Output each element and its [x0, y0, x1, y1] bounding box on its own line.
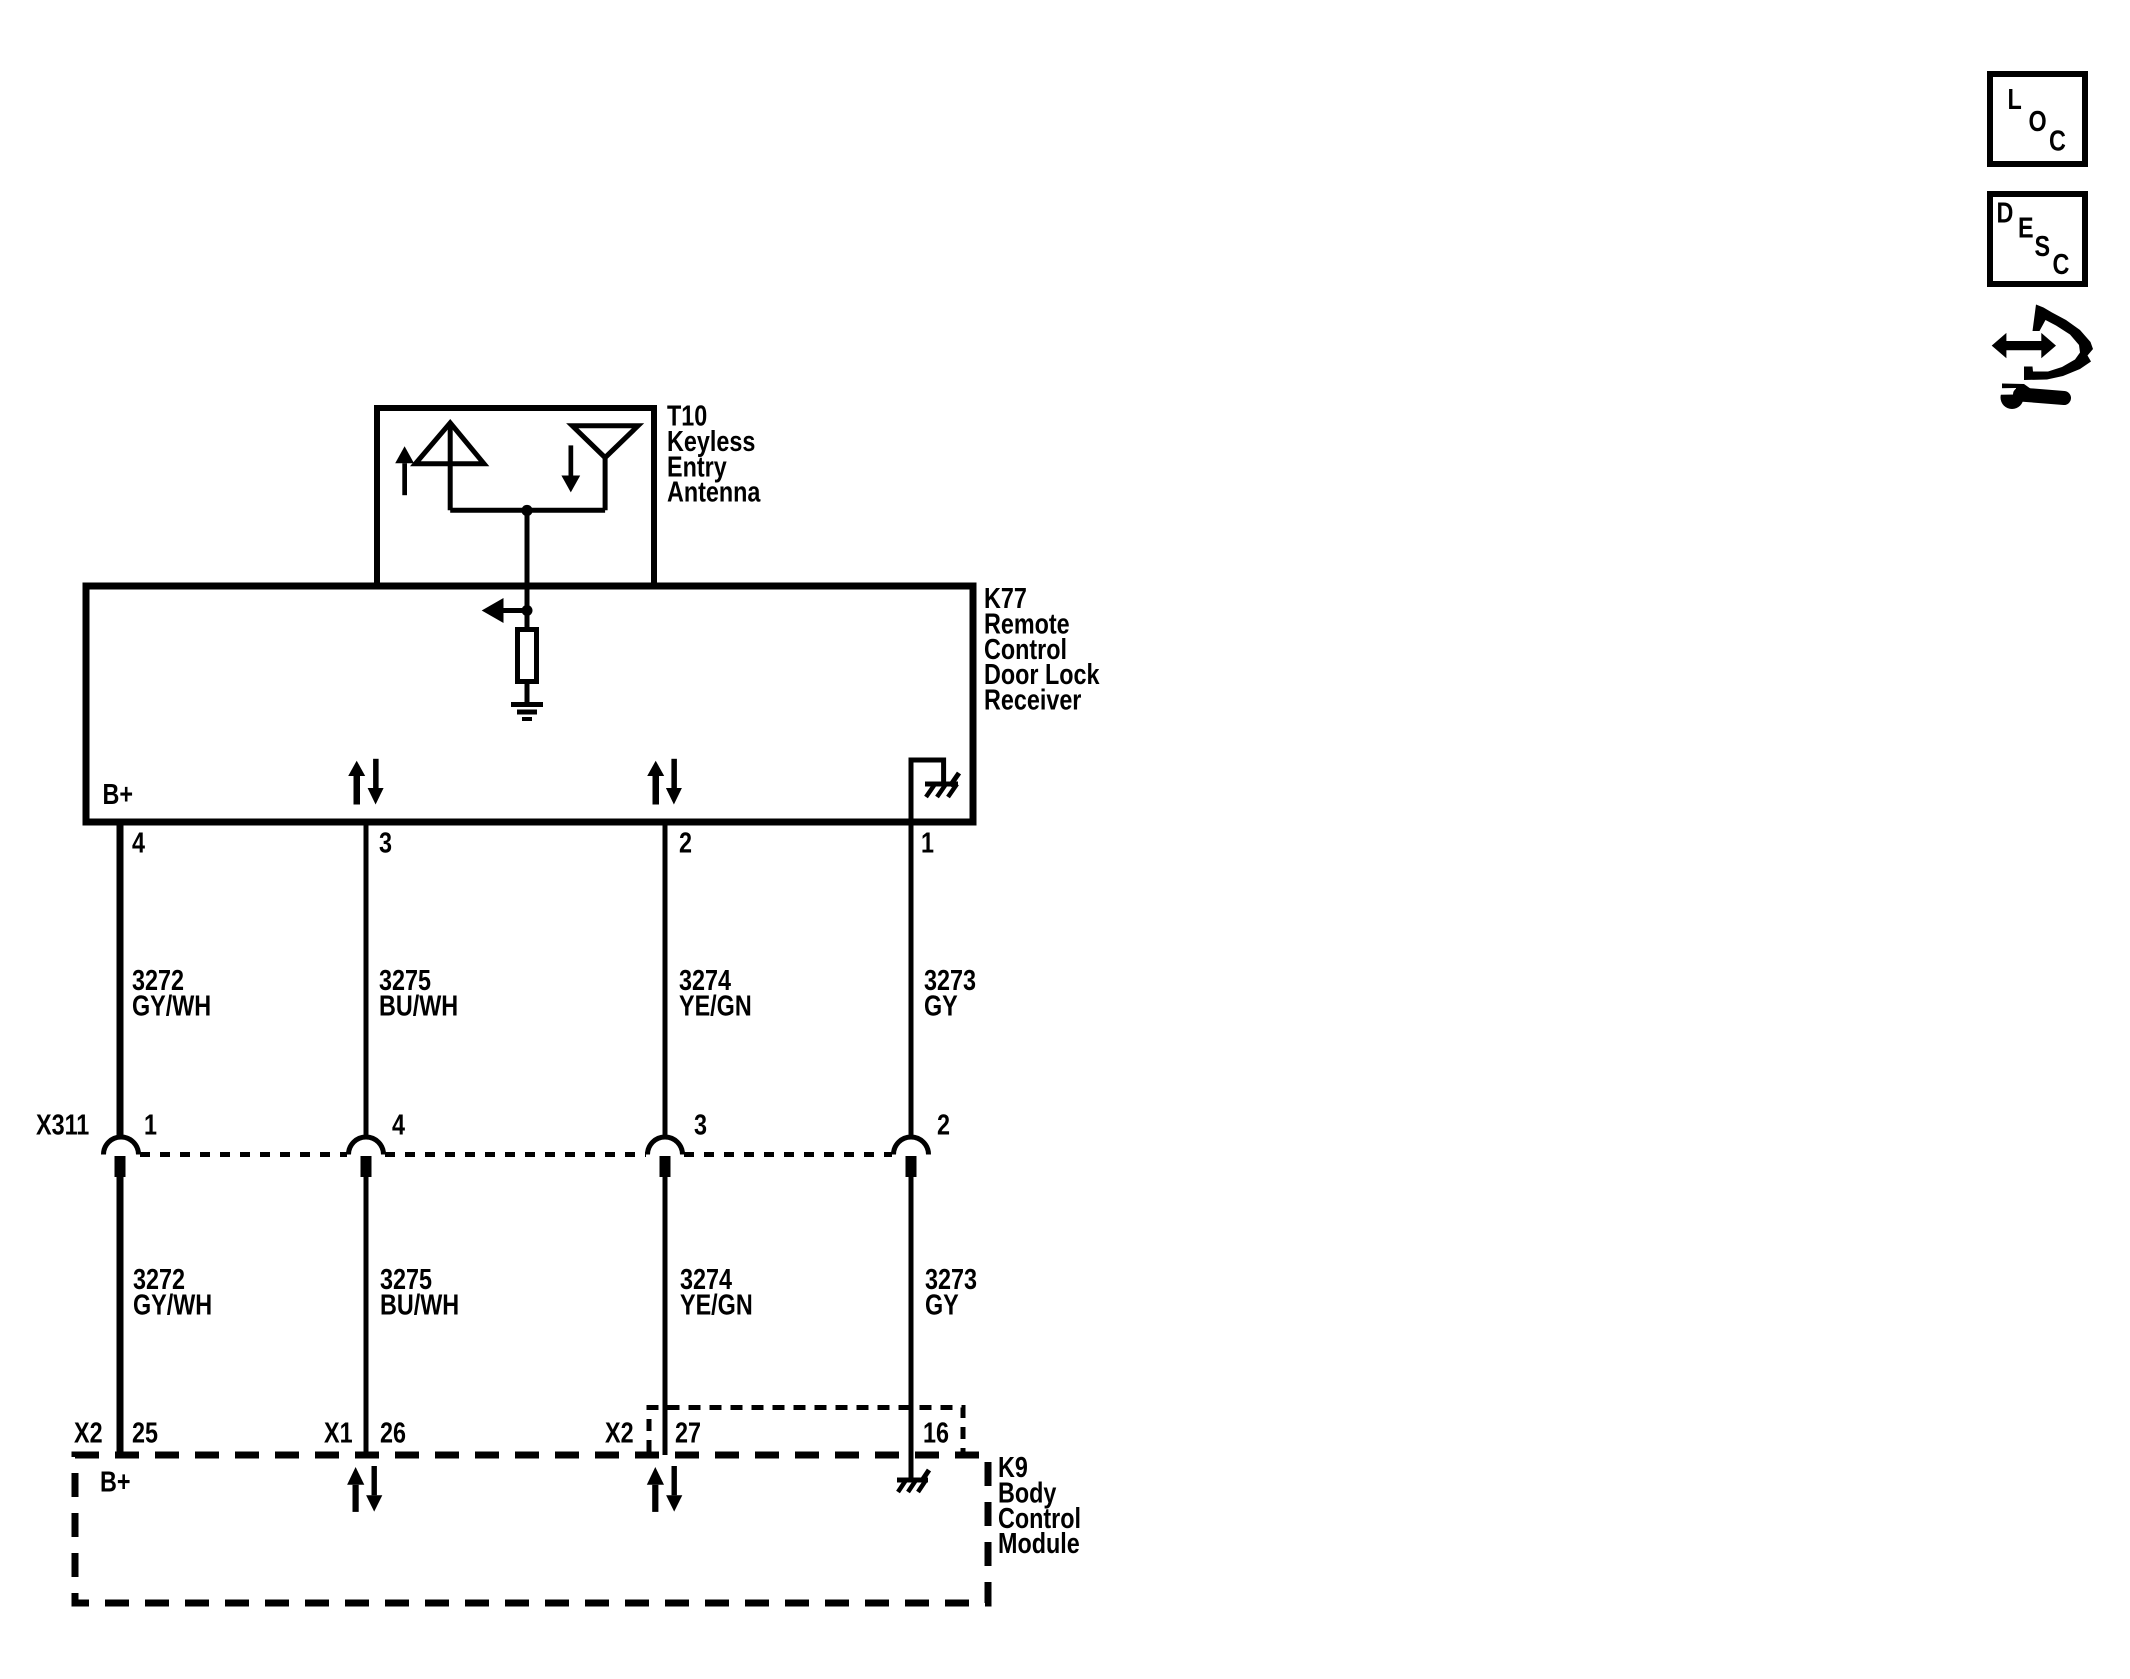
svg-text:27: 27: [675, 1416, 701, 1449]
svg-text:1: 1: [144, 1108, 157, 1141]
svg-text:X1: X1: [324, 1416, 353, 1449]
svg-text:Antenna: Antenna: [667, 475, 761, 508]
svg-text:BU/WH: BU/WH: [380, 1288, 459, 1321]
svg-text:Module: Module: [998, 1527, 1080, 1560]
svg-text:X311: X311: [36, 1108, 89, 1141]
svg-text:YE/GN: YE/GN: [679, 989, 752, 1022]
svg-text:BU/WH: BU/WH: [379, 989, 458, 1022]
svg-text:L: L: [2008, 83, 2022, 116]
svg-text:X2: X2: [605, 1416, 634, 1449]
svg-text:25: 25: [132, 1416, 158, 1449]
svg-text:YE/GN: YE/GN: [680, 1288, 753, 1321]
svg-text:B+: B+: [100, 1465, 131, 1498]
svg-text:3: 3: [694, 1108, 707, 1141]
svg-text:2: 2: [937, 1108, 950, 1141]
svg-text:C: C: [2049, 124, 2066, 157]
svg-text:16: 16: [923, 1416, 949, 1449]
svg-text:3: 3: [379, 826, 392, 859]
svg-text:GY: GY: [925, 1288, 959, 1321]
svg-text:Receiver: Receiver: [984, 683, 1081, 716]
svg-text:4: 4: [132, 826, 145, 859]
svg-text:X2: X2: [74, 1416, 103, 1449]
svg-text:2: 2: [679, 826, 692, 859]
svg-text:GY: GY: [924, 989, 958, 1022]
svg-text:4: 4: [392, 1108, 405, 1141]
svg-text:GY/WH: GY/WH: [132, 989, 211, 1022]
svg-text:1: 1: [921, 826, 934, 859]
svg-text:O: O: [2029, 105, 2047, 138]
svg-text:GY/WH: GY/WH: [133, 1288, 212, 1321]
svg-text:B+: B+: [103, 778, 134, 811]
svg-text:D: D: [1997, 196, 2014, 229]
svg-text:E: E: [2018, 211, 2034, 244]
svg-text:C: C: [2053, 248, 2070, 281]
svg-text:S: S: [2035, 230, 2051, 263]
svg-text:26: 26: [380, 1416, 406, 1449]
